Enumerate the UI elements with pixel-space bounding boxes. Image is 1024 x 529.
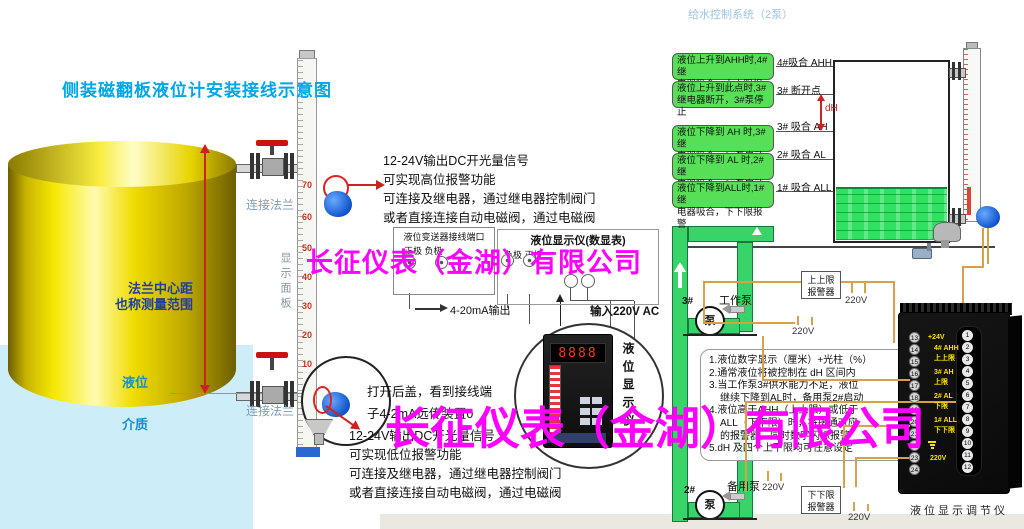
backup-pump-stand bbox=[683, 518, 757, 520]
working-pump-id: 3# bbox=[682, 296, 693, 307]
level-label-all: 1# 吸合 ALL bbox=[777, 179, 831, 194]
terminal-label-all: 1# ALL bbox=[934, 417, 957, 424]
terminal-12: 12 bbox=[962, 462, 973, 473]
terminal-3: 3 bbox=[962, 354, 973, 365]
transmitter-wire bbox=[962, 266, 964, 303]
gauge-panel-label: 显示面板 bbox=[277, 252, 293, 312]
dh-arrow-down bbox=[817, 124, 825, 131]
right-tank-liquid bbox=[836, 188, 947, 240]
wire bbox=[893, 281, 895, 343]
alarm-box-line: 报警器 bbox=[802, 286, 840, 298]
terminal-2: 2 bbox=[962, 342, 973, 353]
terminal-15: 15 bbox=[909, 356, 920, 367]
voltage-label: 220V bbox=[845, 295, 867, 306]
watermark-large: 长征仪表（金湖）有限公司 bbox=[385, 392, 925, 457]
terminal-7: 7 bbox=[962, 402, 973, 413]
level-label-ahh: 4#吸合 AHH bbox=[777, 54, 832, 69]
dh-label: dH bbox=[825, 103, 838, 114]
backup-pump-arrow bbox=[722, 491, 730, 501]
terminal-5: 5 bbox=[962, 378, 973, 389]
pump-symbol: 泵 bbox=[705, 499, 716, 511]
power-hook bbox=[851, 283, 853, 293]
terminal-label-al-sub: 下限 bbox=[934, 401, 948, 411]
transmitter-wire bbox=[962, 266, 984, 268]
wire bbox=[762, 336, 764, 379]
high-alarm-arrow-line bbox=[348, 184, 377, 186]
alarm-box-line: 上上限 bbox=[802, 274, 840, 286]
level-label-al: 2# 吸合 AL bbox=[777, 146, 826, 161]
display-digits: 8888 bbox=[558, 346, 597, 361]
terminal-4: 4 bbox=[962, 366, 973, 377]
right-tap-stem bbox=[927, 243, 931, 251]
working-pump: 泵 bbox=[695, 306, 725, 336]
transmitter-wire bbox=[987, 228, 989, 264]
relay-note-al: 液位下降到 AL 时,2#继 电器吸合，2#泵启动 bbox=[672, 153, 774, 180]
ground-icon bbox=[928, 441, 936, 443]
power-hook bbox=[811, 317, 813, 325]
right-drain-fitting bbox=[933, 222, 961, 242]
terminal-8: 8 bbox=[962, 414, 973, 425]
terminal-17: 17 bbox=[909, 380, 920, 391]
diagram-canvas: 侧装磁翻板液位计安装接线示意图 法兰中心距 也称测量范围 液位 介质 连接法兰 … bbox=[0, 0, 1024, 529]
right-flange-bar bbox=[958, 208, 961, 226]
tank-body bbox=[8, 163, 236, 407]
level-label-break: 3# 断开点 bbox=[777, 82, 821, 97]
terminal-10: 10 bbox=[962, 438, 973, 449]
flow-arrow-up bbox=[674, 262, 686, 272]
low-alarm-note-line: 或者直接连接自动电磁阀，通过电磁阀 bbox=[349, 484, 562, 503]
signal-wire bbox=[409, 293, 410, 309]
liquid-level-label: 液位 bbox=[122, 372, 148, 391]
terminal-14: 14 bbox=[909, 344, 920, 355]
alarm-box-line: 下下限 bbox=[802, 489, 840, 501]
measuring-range-arrow-up bbox=[200, 144, 210, 153]
brand-tag bbox=[296, 447, 320, 457]
gauge-scale-30: 30 bbox=[302, 301, 312, 311]
medium-label: 介质 bbox=[122, 414, 148, 433]
relay-note-all: 液位下降到ALL时,1#继 电器吸合，下下限报警 bbox=[672, 181, 774, 208]
flow-arrow-stem bbox=[678, 272, 682, 288]
terminal-label-all-sub: 下下限 bbox=[934, 425, 955, 435]
wire bbox=[762, 379, 910, 381]
voltage-label: 220V bbox=[762, 482, 784, 493]
voltage-label: 220V bbox=[792, 326, 814, 337]
wire bbox=[703, 322, 795, 324]
output-arrow-line bbox=[415, 308, 441, 310]
wire bbox=[855, 457, 910, 459]
lower-valve-stem bbox=[270, 358, 274, 370]
alarm-box-line: 报警器 bbox=[802, 501, 840, 513]
display-feed-arrow bbox=[556, 294, 564, 302]
wire bbox=[703, 281, 705, 323]
high-alarm-note-line: 可连接及继电器，通过继电器控制阀门 bbox=[383, 190, 596, 209]
terminal-6: 6 bbox=[962, 390, 973, 401]
right-flange-bar bbox=[952, 62, 955, 80]
lower-limit-alarm-box: 下下限 报警器 bbox=[801, 486, 841, 514]
notes-line: 1.液位数字显示（厘米）+光柱（%） bbox=[709, 355, 903, 368]
output-arrow-head bbox=[440, 304, 448, 312]
working-pump-arrow bbox=[722, 304, 730, 314]
power-hook bbox=[853, 502, 855, 511]
upper-valve-stem bbox=[270, 146, 274, 155]
backup-pump-id: 2# bbox=[684, 485, 695, 496]
upper-flange-bar bbox=[284, 153, 288, 179]
ground-icon bbox=[931, 447, 934, 449]
power-hook bbox=[780, 473, 782, 481]
gauge-scale-60: 60 bbox=[302, 212, 312, 222]
terminal-13: 13 bbox=[909, 332, 920, 343]
right-flange-bar bbox=[958, 62, 961, 80]
terminal-16: 16 bbox=[909, 368, 920, 379]
measuring-range-arrow-down bbox=[200, 385, 210, 394]
high-alarm-note-line: 或者直接连接自动电磁阀，通过电磁阀 bbox=[383, 209, 596, 228]
terminal-label-ah: 3# AH bbox=[934, 369, 954, 376]
terminal-11: 11 bbox=[962, 450, 973, 461]
terminal-label-220v: 220V bbox=[930, 455, 946, 462]
relay-note-line: 液位下降到ALL时,1#继 bbox=[677, 183, 769, 207]
upper-flange-bar bbox=[290, 153, 294, 179]
relay-note-ah: 液位下降到 AH 时,3#继 电器吸合，3#泵启动 bbox=[672, 125, 774, 152]
right-gauge-red-zone bbox=[967, 187, 971, 215]
power-hook bbox=[864, 283, 866, 293]
measuring-range-line bbox=[204, 152, 206, 392]
right-drain-stem bbox=[941, 240, 949, 248]
backup-pump-arrow-stem bbox=[730, 493, 745, 500]
upper-valve-body bbox=[262, 158, 284, 176]
system-title: 给水控制系统（2泵） bbox=[688, 6, 793, 22]
gauge-scale-70: 70 bbox=[302, 180, 312, 190]
backup-pump: 泵 bbox=[695, 490, 725, 520]
terminal-24: 24 bbox=[909, 464, 920, 475]
power-hook bbox=[767, 471, 769, 481]
upper-limit-alarm-box: 上上限 报警器 bbox=[801, 271, 841, 299]
upper-transmitter bbox=[324, 191, 352, 217]
relay-note-ahh: 液位上升到AHH时,4#继 电器吸合，上上限报警 bbox=[672, 53, 774, 80]
wire bbox=[703, 281, 893, 283]
terminal-label-al: 2# AL bbox=[934, 393, 953, 400]
high-alarm-note-line: 可实现高位报警功能 bbox=[383, 171, 596, 190]
voltage-label: 220V bbox=[848, 512, 870, 523]
right-transmitter bbox=[976, 206, 1000, 228]
relay-note-line: 液位下降到 AL 时,2#继 bbox=[677, 155, 769, 179]
transmitter-wire bbox=[982, 228, 984, 268]
wire bbox=[855, 457, 857, 487]
flange-label-top: 连接法兰 bbox=[246, 196, 294, 213]
pump-symbol: 泵 bbox=[705, 315, 716, 327]
high-alarm-note: 12-24V输出DC开光量信号 可实现高位报警功能 可连接及继电器，通过继电器控… bbox=[383, 152, 596, 228]
watermark-small: 长征仪表（金湖）有限公司 bbox=[306, 241, 642, 280]
terminal-label-ah-sub: 上限 bbox=[934, 377, 948, 387]
power-hook bbox=[867, 504, 869, 511]
tank-dim-label-2: 也称测量范围 bbox=[115, 294, 193, 313]
output-label: 4-20mA输出 bbox=[450, 302, 511, 318]
relay-note-line: 电器吸合，下下限报警 bbox=[677, 207, 769, 231]
relay-note-line: 液位上升到AHH时,4#继 bbox=[677, 55, 769, 79]
flange-label-bottom: 连接法兰 bbox=[246, 402, 294, 419]
relay-note-line: 液位下降到 AH 时,3#继 bbox=[677, 127, 769, 151]
controller-side bbox=[1008, 315, 1022, 488]
gauge-scale-10: 10 bbox=[302, 359, 312, 369]
display-digit-window: 8888 bbox=[550, 343, 606, 363]
working-pump-stand bbox=[683, 334, 757, 336]
terminal-1: 1 bbox=[962, 330, 973, 341]
power-hook bbox=[797, 316, 799, 325]
ground-icon bbox=[930, 444, 935, 446]
backup-pump-label: 备用泵 bbox=[727, 478, 760, 494]
terminal-label-ahh-sub: 上上限 bbox=[934, 353, 955, 363]
input-label: 输入220V AC bbox=[590, 303, 659, 319]
upper-flange-bar bbox=[250, 153, 254, 179]
relay-note-line: 液位上升到此点时,3# bbox=[677, 83, 769, 95]
relay-note-stop: 液位上升到此点时,3# 继电器断开，3#泵停止 bbox=[672, 81, 774, 108]
terminal-label-24v: +24V bbox=[928, 334, 945, 341]
terminal-9: 9 bbox=[962, 426, 973, 437]
dh-arrow-up bbox=[817, 94, 825, 101]
terminal-label-ahh: 4# AHH bbox=[934, 345, 959, 352]
drain-stem bbox=[314, 433, 324, 445]
low-alarm-note-line: 可连接及继电器，通过继电器控制阀门 bbox=[349, 465, 562, 484]
upper-flange-bar bbox=[256, 153, 260, 179]
controller-label: 液位显示调节仪 bbox=[910, 502, 1008, 518]
high-alarm-arrow-head bbox=[376, 180, 385, 190]
right-liquid-line bbox=[836, 187, 947, 189]
high-alarm-note-line: 12-24V输出DC开光量信号 bbox=[383, 152, 596, 171]
notes-line: 3.当工作泵3#供水能力不足，液位 bbox=[709, 380, 903, 393]
gauge-scale-20: 20 bbox=[302, 330, 312, 340]
page-title: 侧装磁翻板液位计安装接线示意图 bbox=[62, 76, 332, 101]
relay-note-line: 继电器断开，3#泵停止 bbox=[677, 95, 769, 119]
